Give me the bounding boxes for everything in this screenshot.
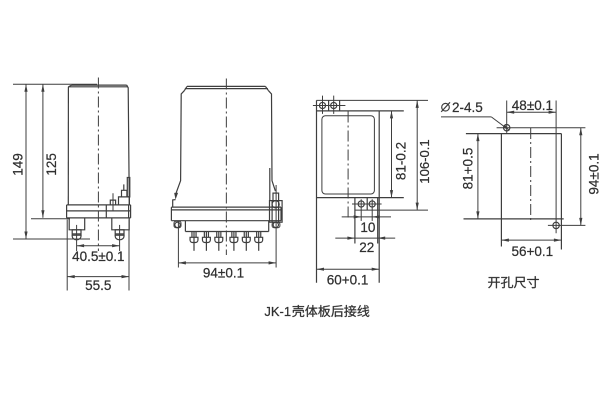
svg-text:94±0.1: 94±0.1 xyxy=(203,265,244,280)
svg-text:55.5: 55.5 xyxy=(85,278,111,293)
svg-text:56+0.1: 56+0.1 xyxy=(511,244,553,259)
svg-text:60+0.1: 60+0.1 xyxy=(327,272,369,287)
svg-text:125: 125 xyxy=(44,153,59,176)
svg-text:81+0.5: 81+0.5 xyxy=(460,148,475,190)
svg-text:149: 149 xyxy=(10,153,25,176)
svg-text:81-0.2: 81-0.2 xyxy=(394,142,409,180)
svg-text:40.5±0.1: 40.5±0.1 xyxy=(72,249,124,264)
svg-text:94±0.1: 94±0.1 xyxy=(586,153,600,194)
svg-text:106-0.1: 106-0.1 xyxy=(417,139,432,183)
svg-text:22: 22 xyxy=(359,240,374,255)
svg-text:10: 10 xyxy=(360,220,375,235)
svg-text:2-4.5: 2-4.5 xyxy=(452,100,483,115)
svg-text:48±0.1: 48±0.1 xyxy=(512,98,553,113)
svg-text:JK-1: JK-1 xyxy=(264,304,291,319)
